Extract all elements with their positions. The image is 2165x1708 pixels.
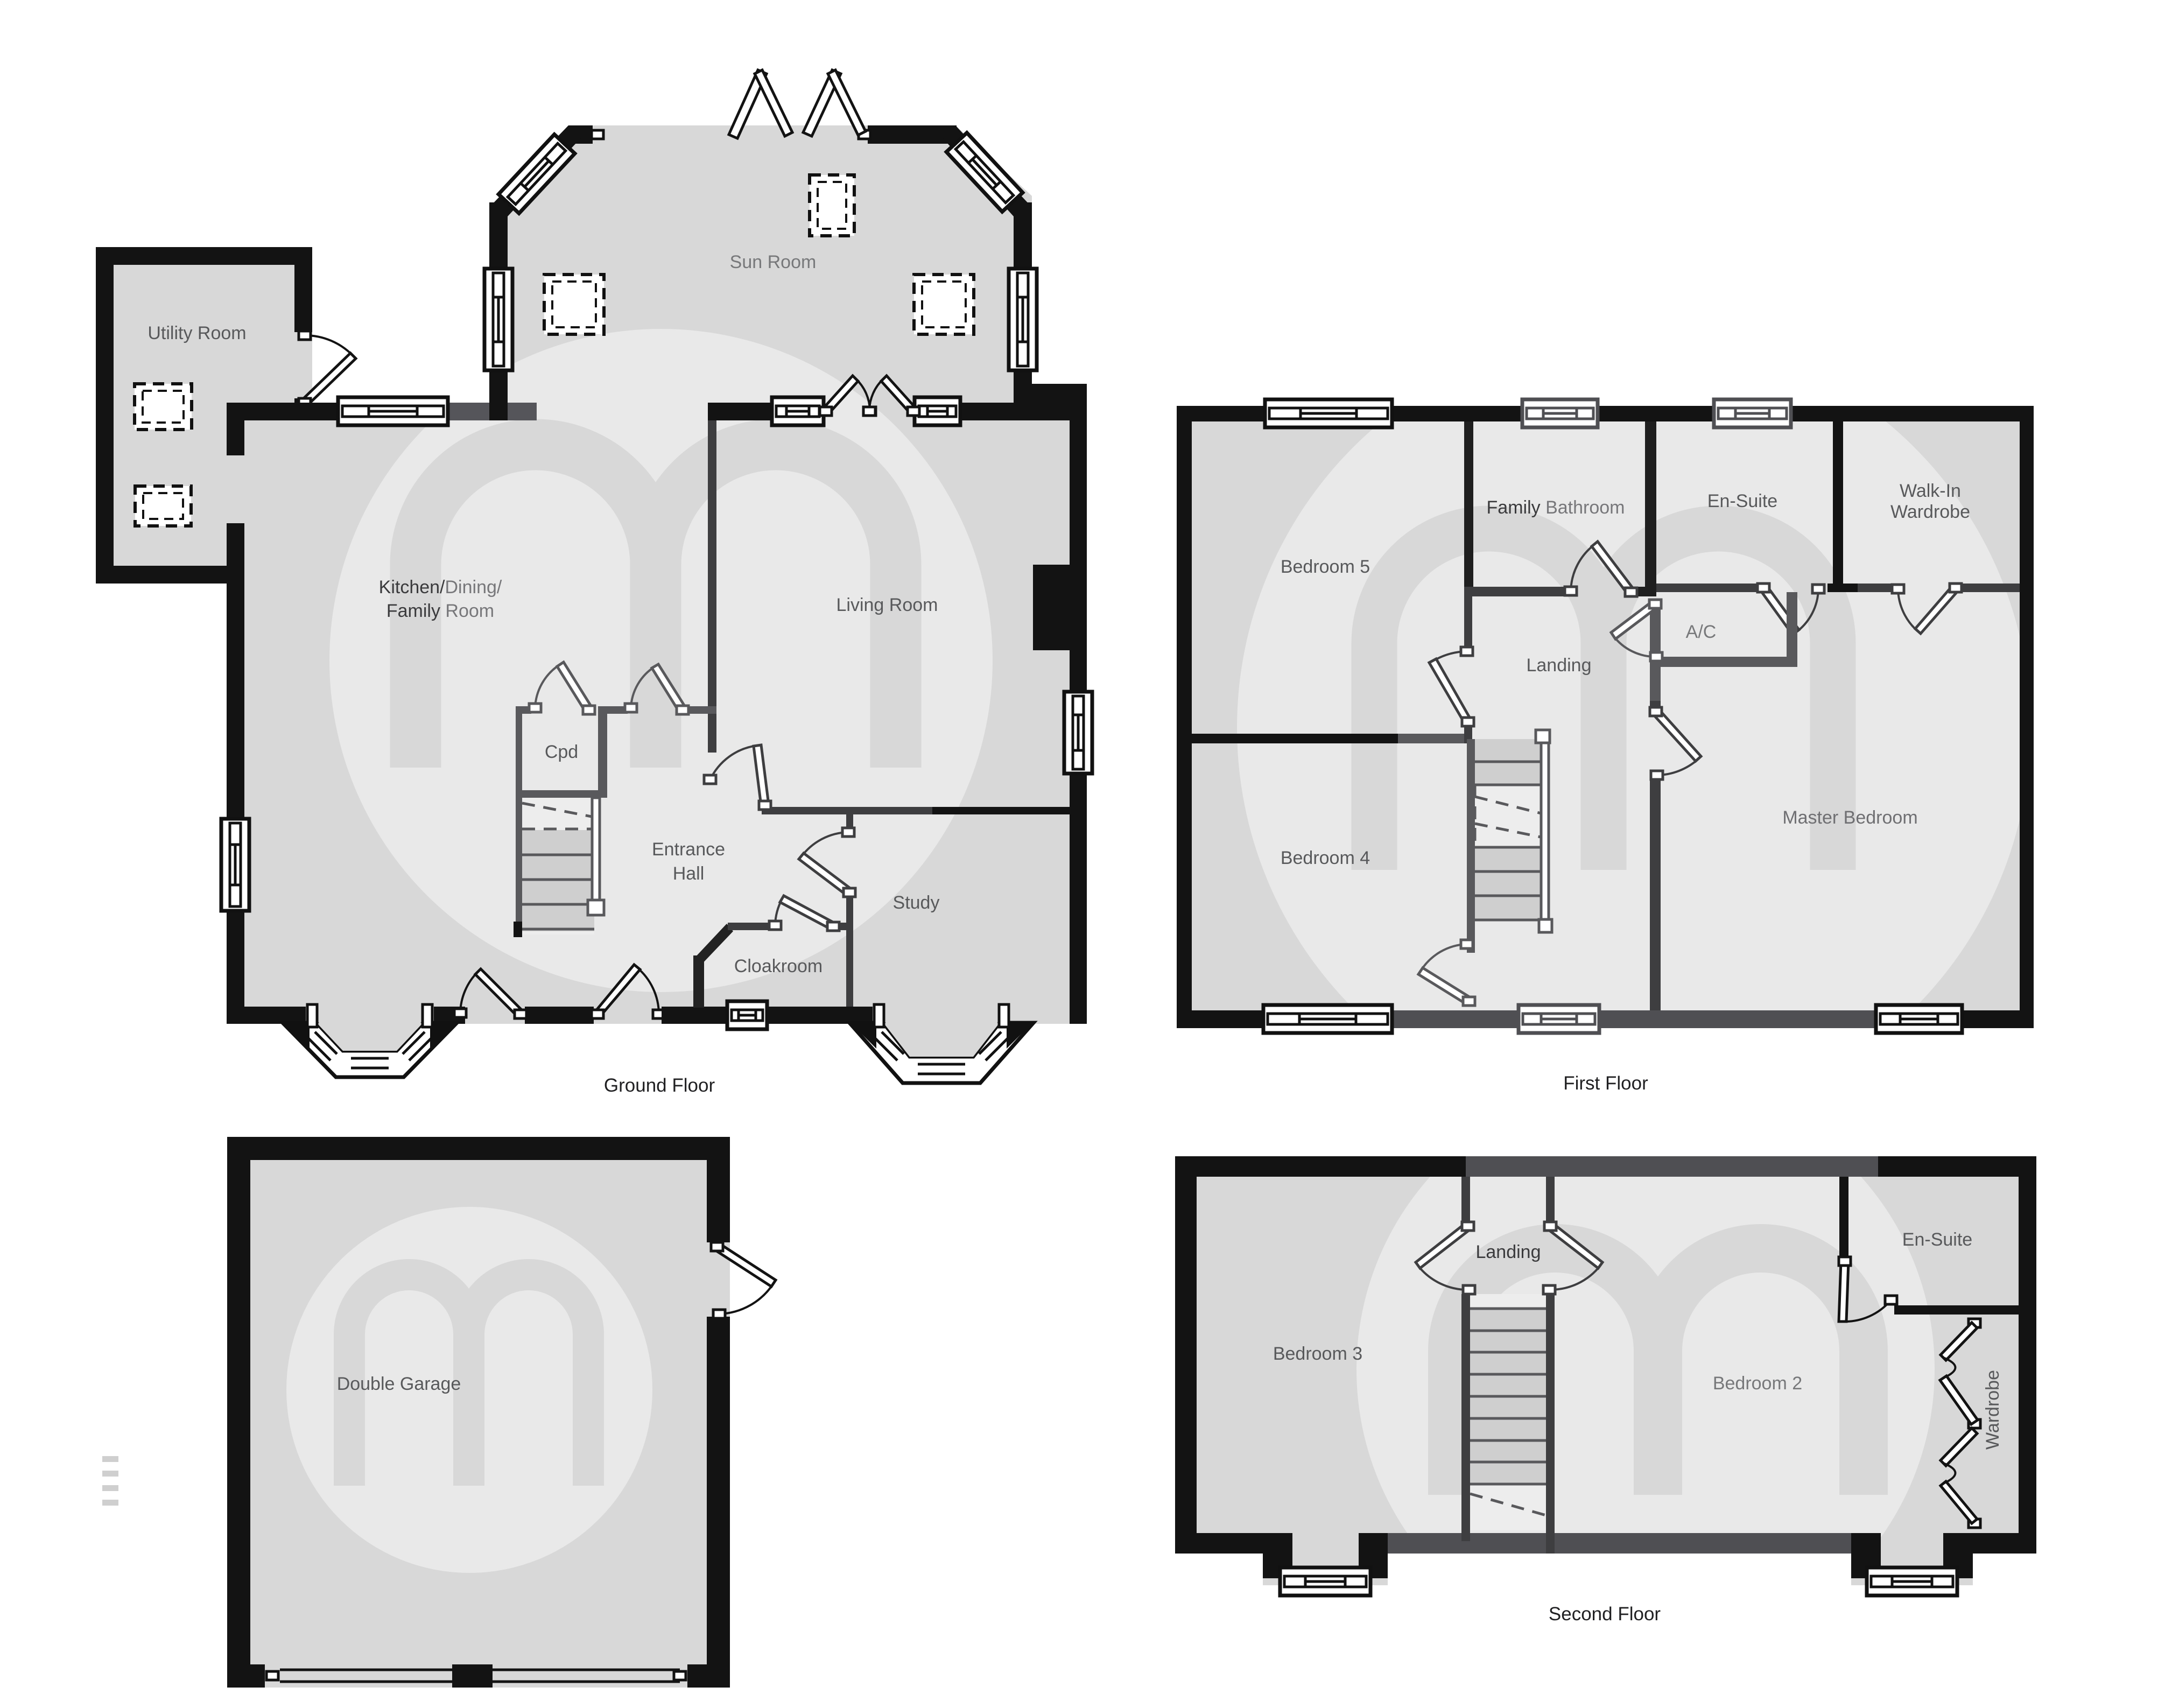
svg-text:Cloakroom: Cloakroom: [734, 956, 823, 976]
svg-text:Bedroom 4: Bedroom 4: [1281, 848, 1370, 868]
svg-text:Ground Floor: Ground Floor: [604, 1075, 715, 1096]
svg-text:Living Room: Living Room: [837, 595, 938, 615]
svg-text:Kitchen/Dining/: Kitchen/Dining/: [379, 577, 502, 598]
svg-text:Sun Room: Sun Room: [730, 252, 817, 272]
svg-text:Bedroom 5: Bedroom 5: [1281, 557, 1370, 577]
svg-text:En-Suite: En-Suite: [1902, 1229, 1972, 1250]
svg-text:Family Room: Family Room: [386, 601, 494, 621]
svg-text:A/C: A/C: [1686, 622, 1717, 642]
svg-text:Second Floor: Second Floor: [1549, 1604, 1661, 1625]
svg-text:Study: Study: [893, 892, 940, 913]
svg-text:En-Suite: En-Suite: [1707, 491, 1777, 511]
svg-text:Landing: Landing: [1475, 1242, 1541, 1262]
svg-text:Landing: Landing: [1526, 655, 1591, 676]
svg-text:Family Bathroom: Family Bathroom: [1487, 497, 1625, 518]
svg-text:Wardrobe: Wardrobe: [1890, 502, 1970, 522]
svg-text:Utility Room: Utility Room: [147, 323, 246, 343]
svg-text:Bedroom 3: Bedroom 3: [1273, 1344, 1362, 1364]
svg-text:Walk-In: Walk-In: [1900, 481, 1961, 501]
svg-text:Cpd: Cpd: [545, 742, 578, 762]
svg-text:Entrance: Entrance: [652, 839, 725, 860]
svg-text:Master Bedroom: Master Bedroom: [1782, 807, 1917, 828]
svg-text:Bedroom 2: Bedroom 2: [1713, 1373, 1802, 1394]
svg-text:Hall: Hall: [673, 863, 705, 884]
svg-text:Wardrobe: Wardrobe: [1983, 1370, 2003, 1450]
svg-text:Double Garage: Double Garage: [337, 1374, 461, 1394]
svg-text:First Floor: First Floor: [1563, 1073, 1648, 1094]
